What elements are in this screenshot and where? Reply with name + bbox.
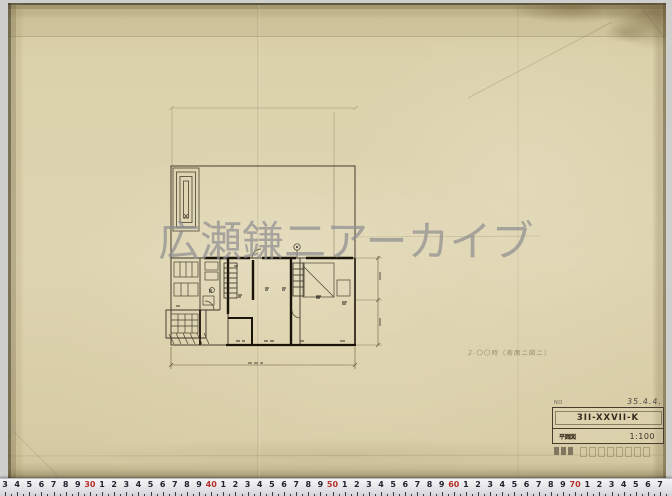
title-block-box: 3II-XXVII-K 平面図 1:100 bbox=[552, 407, 664, 444]
title-stamp: 平面図 bbox=[559, 432, 576, 441]
watermark-text: 広瀬鎌二アーカイブ bbox=[158, 219, 533, 265]
ruler-number: 8 bbox=[63, 480, 69, 489]
ruler-number: 5 bbox=[633, 480, 639, 489]
ruler-number: 6 bbox=[281, 480, 287, 489]
title-block: NO 35.4.4. 3II-XXVII-K 平面図 1:100 bbox=[552, 395, 664, 457]
ruler-number: 6 bbox=[160, 480, 166, 489]
ruler-number: 2 bbox=[233, 480, 239, 489]
ruler-number: 2 bbox=[475, 480, 481, 489]
ruler-number: 9 bbox=[318, 480, 324, 489]
ruler-number: 4 bbox=[500, 480, 506, 489]
number-label: NO bbox=[554, 400, 563, 406]
ruler-number: 1 bbox=[221, 480, 227, 489]
ruler-number: 3 bbox=[245, 480, 251, 489]
ruler-number: 8 bbox=[305, 480, 311, 489]
ruler-number: 6 bbox=[524, 480, 530, 489]
plan-dimensions bbox=[169, 256, 382, 369]
ruler-number: 6 bbox=[39, 480, 45, 489]
ruler-number: 5 bbox=[26, 480, 32, 489]
ruler-number: 2 bbox=[597, 480, 603, 489]
ruler-number: 7 bbox=[51, 480, 57, 489]
ruler-number: 2 bbox=[354, 480, 360, 489]
scanned-drawing-page: 広瀬鎌二アーカイブ 2-〇〇時（南面ニ図ニ） NO 35.4.4. 3II-XX… bbox=[0, 0, 672, 496]
ruler-number: 7 bbox=[172, 480, 178, 489]
ruler-number: 4 bbox=[378, 480, 384, 489]
handwritten-date: 35.4.4. bbox=[627, 397, 663, 406]
ruler-number: 30 bbox=[84, 480, 95, 489]
measuring-ruler: 3456789301234567894012345678950123456789… bbox=[0, 478, 672, 496]
plan-walls-thick bbox=[200, 258, 356, 345]
ruler-number: 4 bbox=[136, 480, 142, 489]
ruler-number: 1 bbox=[342, 480, 348, 489]
ruler-number: 9 bbox=[75, 480, 81, 489]
ruler-number: 3 bbox=[2, 480, 8, 489]
ruler-number: 9 bbox=[560, 480, 566, 489]
ruler-number: 4 bbox=[257, 480, 263, 489]
ruler-number: 7 bbox=[536, 480, 542, 489]
ruler-number: 6 bbox=[645, 480, 651, 489]
ruler-number: 40 bbox=[206, 480, 217, 489]
ruler-number: 5 bbox=[269, 480, 275, 489]
drawing-number: 3II-XXVII-K bbox=[555, 411, 662, 425]
plan-walls-thin bbox=[166, 258, 355, 345]
pencil-note: 2-〇〇時（南面ニ図ニ） bbox=[468, 347, 552, 357]
ruler-number: 1 bbox=[99, 480, 105, 489]
ruler-number: 8 bbox=[427, 480, 433, 489]
ruler-number: 60 bbox=[448, 480, 459, 489]
plan-room-labels bbox=[176, 266, 347, 341]
ruler-number: 4 bbox=[621, 480, 627, 489]
ruler-number: 50 bbox=[327, 480, 338, 489]
ruler-number: 7 bbox=[293, 480, 299, 489]
ruler-number: 4 bbox=[14, 480, 20, 489]
ruler-number: 5 bbox=[390, 480, 396, 489]
drawing-scale: 1:100 bbox=[629, 432, 655, 441]
ruler-number: 9 bbox=[196, 480, 202, 489]
ruler-number: 3 bbox=[487, 480, 493, 489]
ruler-number: 7 bbox=[657, 480, 663, 489]
ruler-number: 70 bbox=[570, 480, 581, 489]
ruler-number: 1 bbox=[584, 480, 590, 489]
faint-stamp-row bbox=[552, 447, 664, 457]
ruler-number: 3 bbox=[609, 480, 615, 489]
ruler-number: 1 bbox=[463, 480, 469, 489]
ruler-number: 8 bbox=[184, 480, 190, 489]
ruler-number: 8 bbox=[548, 480, 554, 489]
ruler-number: 5 bbox=[148, 480, 154, 489]
ruler-number: 9 bbox=[439, 480, 445, 489]
ruler-number: 6 bbox=[402, 480, 408, 489]
ruler-number: 3 bbox=[366, 480, 372, 489]
ruler-number: 3 bbox=[124, 480, 130, 489]
ruler-number: 7 bbox=[415, 480, 421, 489]
ruler-number: 5 bbox=[512, 480, 518, 489]
ruler-number: 2 bbox=[111, 480, 117, 489]
